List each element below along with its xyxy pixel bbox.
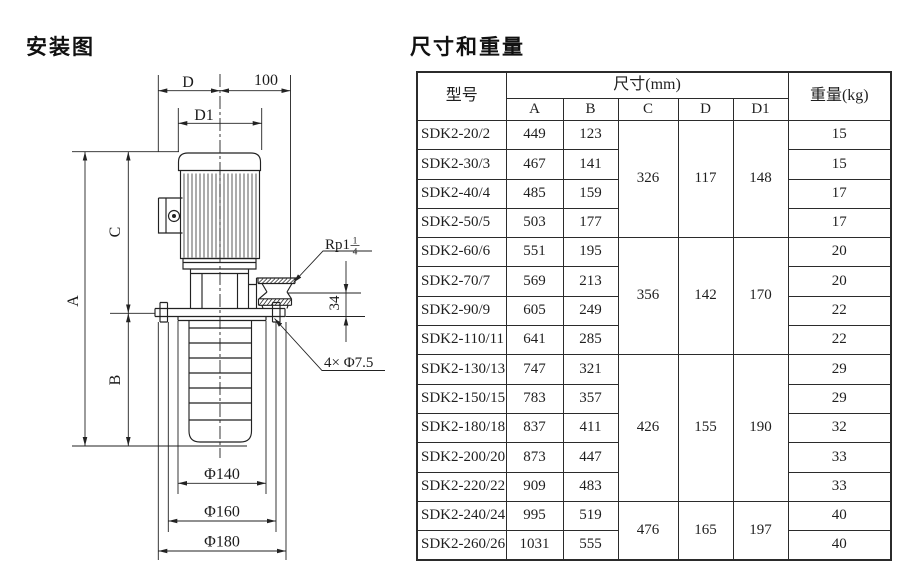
col-header-model: 型号 — [417, 72, 506, 121]
cell-weight: 32 — [788, 413, 891, 442]
installation-diagram: D 100 D1 A C B 34 Rp1 1 4 4× Φ7.5 Φ140 Φ… — [0, 0, 410, 582]
cell-dim-b: 159 — [563, 179, 618, 208]
cell-dim-c: 326 — [618, 121, 678, 238]
cell-dim-d1: 148 — [733, 121, 788, 238]
cell-dim-a: 467 — [506, 150, 563, 179]
table-row: SDK2-240/2499551947616519740 — [417, 501, 891, 530]
cell-model: SDK2-180/18 — [417, 413, 506, 442]
dim-label-dia160: Φ160 — [204, 504, 240, 521]
cell-dim-d1: 170 — [733, 238, 788, 355]
table-body: SDK2-20/244912332611714815SDK2-30/346714… — [417, 121, 891, 561]
dim-label-d1: D1 — [194, 107, 214, 124]
cell-dim-b: 447 — [563, 443, 618, 472]
cell-weight: 40 — [788, 531, 891, 561]
datasheet-page: 安装图 尺寸和重量 — [0, 0, 900, 582]
cell-dim-b: 141 — [563, 150, 618, 179]
cell-weight: 20 — [788, 267, 891, 296]
cell-dim-d1: 190 — [733, 355, 788, 501]
discharge-pipe — [249, 278, 257, 309]
dimensions-table-wrap: 型号 尺寸(mm) 重量(kg) A B C D D1 SDK2-20/2449… — [416, 71, 890, 561]
cell-model: SDK2-50/5 — [417, 208, 506, 237]
cell-dim-a: 551 — [506, 238, 563, 267]
table-row: SDK2-130/1374732142615519029 — [417, 355, 891, 384]
cell-dim-a: 449 — [506, 121, 563, 150]
table-row: SDK2-20/244912332611714815 — [417, 121, 891, 150]
cell-model: SDK2-20/2 — [417, 121, 506, 150]
cell-dim-d: 155 — [678, 355, 733, 501]
cell-dim-c: 476 — [618, 501, 678, 560]
col-header-a: A — [506, 99, 563, 121]
port-thread-frac-den: 4 — [353, 248, 358, 258]
leader-rp-thread — [294, 251, 373, 283]
cell-model: SDK2-90/9 — [417, 296, 506, 325]
cell-model: SDK2-130/13 — [417, 355, 506, 384]
dim-label-dia140: Φ140 — [204, 466, 240, 483]
cell-model: SDK2-150/15 — [417, 384, 506, 413]
col-header-dims-group: 尺寸(mm) — [506, 72, 788, 99]
cell-dim-b: 483 — [563, 472, 618, 501]
dim-label-34: 34 — [327, 295, 343, 311]
plate-lip — [178, 317, 266, 321]
cell-weight: 33 — [788, 443, 891, 472]
cell-dim-c: 426 — [618, 355, 678, 501]
col-header-b: B — [563, 99, 618, 121]
cell-dim-b: 357 — [563, 384, 618, 413]
cell-dim-a: 485 — [506, 179, 563, 208]
cell-weight: 17 — [788, 179, 891, 208]
pump-head — [191, 269, 249, 309]
cell-model: SDK2-60/6 — [417, 238, 506, 267]
cell-weight: 22 — [788, 326, 891, 355]
cell-model: SDK2-30/3 — [417, 150, 506, 179]
cell-model: SDK2-40/4 — [417, 179, 506, 208]
cell-weight: 29 — [788, 355, 891, 384]
cell-dim-a: 605 — [506, 296, 563, 325]
bolt-holes-label: 4× Φ7.5 — [324, 355, 373, 371]
plate-bolt-left — [160, 303, 168, 323]
dim-label-a: A — [65, 295, 82, 307]
cell-weight: 40 — [788, 501, 891, 530]
motor-fins — [184, 174, 256, 258]
cell-dim-a: 641 — [506, 326, 563, 355]
cell-dim-b: 195 — [563, 238, 618, 267]
cell-dim-a: 747 — [506, 355, 563, 384]
cell-dim-b: 519 — [563, 501, 618, 530]
cell-dim-b: 411 — [563, 413, 618, 442]
dim-label-c: C — [107, 227, 124, 238]
port-thread-hatch-top — [258, 279, 295, 284]
cell-dim-b: 285 — [563, 326, 618, 355]
cell-dim-a: 995 — [506, 501, 563, 530]
cell-dim-d: 142 — [678, 238, 733, 355]
port-thread-label: Rp1 — [325, 237, 350, 253]
cell-dim-d: 165 — [678, 501, 733, 560]
motor-dome — [179, 153, 261, 171]
cell-dim-b: 123 — [563, 121, 618, 150]
cell-dim-b: 249 — [563, 296, 618, 325]
dim-label-d: D — [182, 74, 194, 91]
cell-model: SDK2-260/26 — [417, 531, 506, 561]
ext-dia160 — [168, 322, 276, 532]
cell-dim-a: 569 — [506, 267, 563, 296]
cell-dim-a: 503 — [506, 208, 563, 237]
cell-dim-c: 356 — [618, 238, 678, 355]
cell-weight: 20 — [788, 238, 891, 267]
port-thread-frac-num: 1 — [353, 237, 358, 247]
table-title: 尺寸和重量 — [410, 31, 525, 61]
cell-weight: 15 — [788, 150, 891, 179]
dimensions-table: 型号 尺寸(mm) 重量(kg) A B C D D1 SDK2-20/2449… — [416, 71, 892, 561]
dim-label-dia180: Φ180 — [204, 534, 240, 551]
cell-dim-a: 1031 — [506, 531, 563, 561]
cell-model: SDK2-110/11 — [417, 326, 506, 355]
col-header-d: D — [678, 99, 733, 121]
dim-label-b: B — [107, 375, 124, 386]
cell-dim-b: 555 — [563, 531, 618, 561]
dim-label-100: 100 — [254, 72, 278, 89]
cell-dim-b: 177 — [563, 208, 618, 237]
col-header-c: C — [618, 99, 678, 121]
cell-model: SDK2-220/22 — [417, 472, 506, 501]
cell-dim-a: 909 — [506, 472, 563, 501]
table-row: SDK2-60/655119535614217020 — [417, 238, 891, 267]
cell-model: SDK2-200/20 — [417, 443, 506, 472]
cell-model: SDK2-70/7 — [417, 267, 506, 296]
col-header-d1: D1 — [733, 99, 788, 121]
col-header-weight: 重量(kg) — [788, 72, 891, 121]
cell-dim-a: 783 — [506, 384, 563, 413]
cell-weight: 29 — [788, 384, 891, 413]
cell-weight: 33 — [788, 472, 891, 501]
cell-weight: 17 — [788, 208, 891, 237]
terminal-box-hole-center — [172, 214, 176, 218]
cell-dim-b: 321 — [563, 355, 618, 384]
cell-weight: 15 — [788, 121, 891, 150]
cell-model: SDK2-240/24 — [417, 501, 506, 530]
cell-dim-d: 117 — [678, 121, 733, 238]
cell-dim-b: 213 — [563, 267, 618, 296]
cell-dim-d1: 197 — [733, 501, 788, 560]
cell-dim-a: 873 — [506, 443, 563, 472]
cell-weight: 22 — [788, 296, 891, 325]
motor-flange — [183, 259, 256, 270]
cell-dim-a: 837 — [506, 413, 563, 442]
